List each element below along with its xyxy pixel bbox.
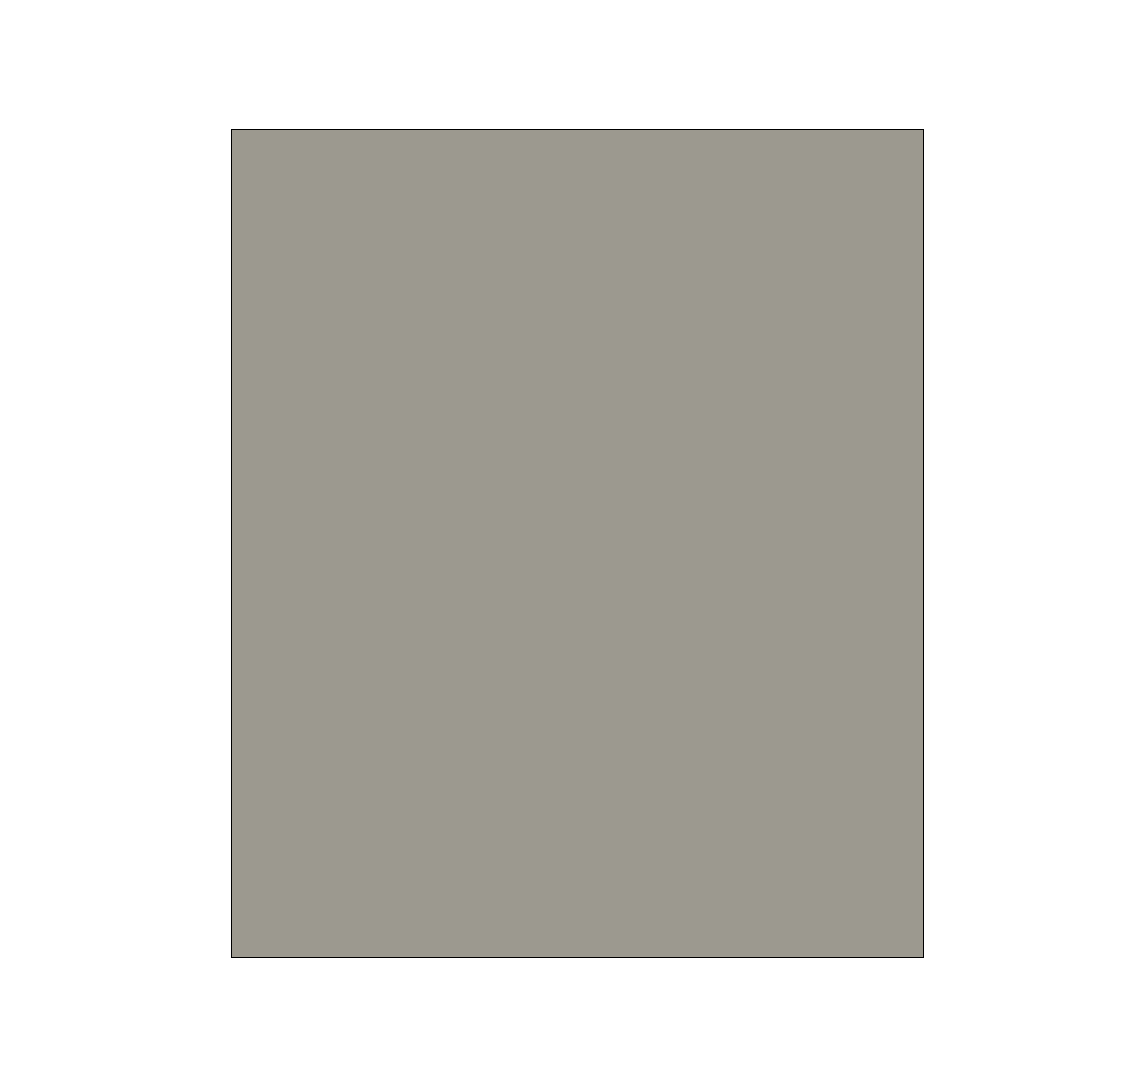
- aerial-basemap: [232, 130, 923, 957]
- figure-window: [0, 0, 1126, 1080]
- map-axes: [231, 129, 924, 958]
